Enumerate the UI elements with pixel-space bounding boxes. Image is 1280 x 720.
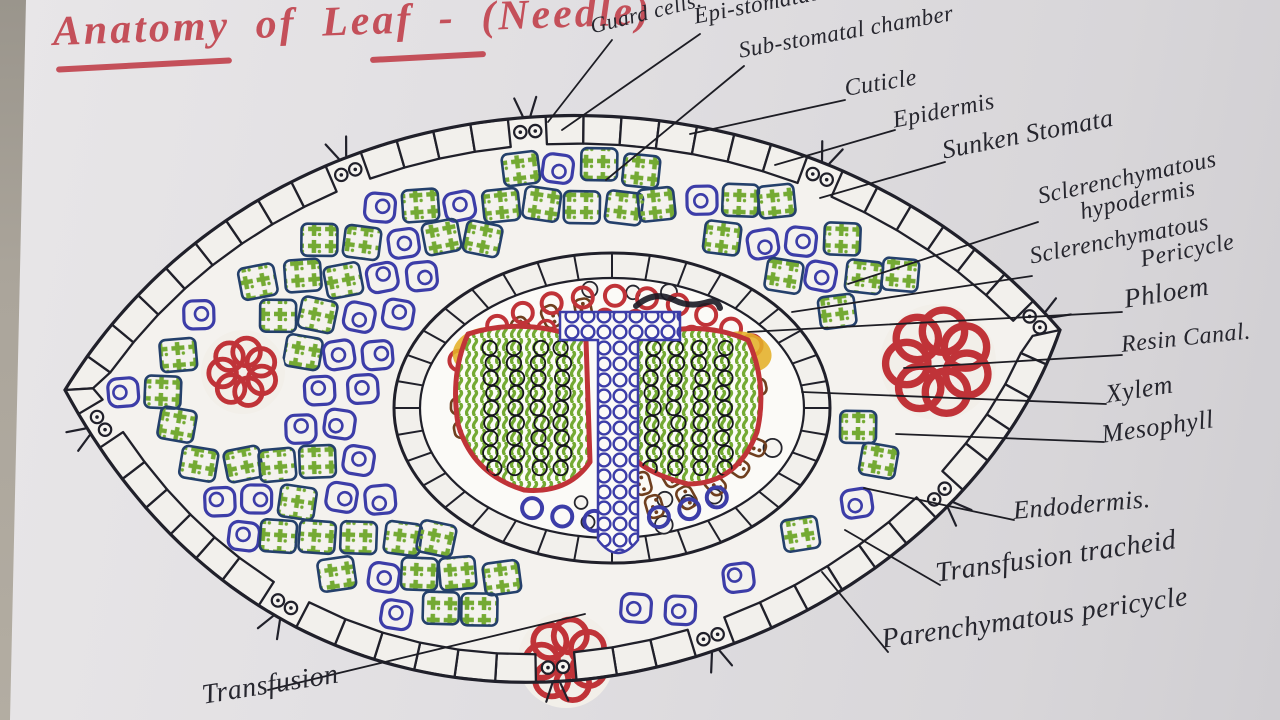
vascular-cylinder (394, 253, 830, 563)
notebook-photo: { "title": { "text": "Anatomy of Leaf - … (0, 0, 1280, 720)
